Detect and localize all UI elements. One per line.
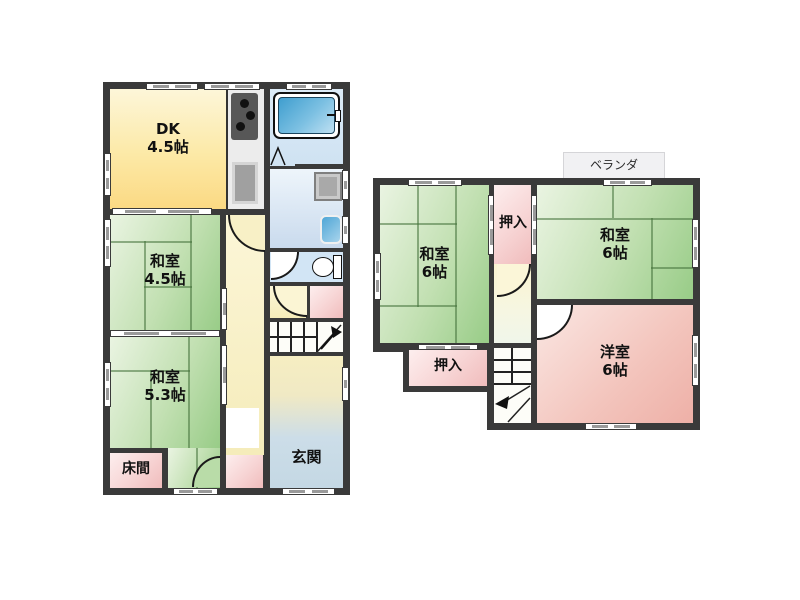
room-washitsu-right-name: 和室 <box>600 226 630 244</box>
stove-burner <box>240 99 249 108</box>
room-dk-name: DK <box>156 120 180 138</box>
fusuma-door <box>221 288 227 330</box>
stairs-floor1 <box>265 322 343 352</box>
room-dk-size: 4.5帖 <box>147 138 189 156</box>
storage-nook <box>226 408 259 448</box>
glass-dash <box>694 227 697 240</box>
glass-dash <box>153 85 169 88</box>
fusuma-door <box>110 330 220 337</box>
room-youshitsu-label: 洋室 6帖 <box>537 343 693 379</box>
veranda-name: ベランダ <box>590 158 638 172</box>
glass-dash <box>451 346 470 349</box>
room-youshitsu-size: 6帖 <box>602 361 627 379</box>
room-washitsu-left-size: 6帖 <box>422 263 447 281</box>
glass-dash <box>415 181 432 184</box>
stairs-floor1-treads <box>265 322 343 352</box>
folding-door-icon <box>269 146 287 166</box>
room-washitsu-45-name: 和室 <box>150 252 180 270</box>
room-genkan-name: 玄関 <box>291 448 321 466</box>
tatami-line <box>651 267 693 269</box>
window <box>146 83 198 90</box>
room-washitsu-53-label: 和室 5.3帖 <box>110 368 220 404</box>
glass-dash <box>106 246 109 259</box>
glass-dash <box>376 261 379 274</box>
fusuma-door <box>221 345 227 405</box>
room-oshiire-upper-name: 押入 <box>499 215 527 231</box>
stove-icon <box>231 93 258 140</box>
glass-dash <box>610 181 625 184</box>
glass-dash <box>533 205 536 221</box>
kitchen-sink-icon <box>232 162 258 204</box>
glass-dash <box>106 160 109 171</box>
glass-dash <box>198 490 212 493</box>
window <box>173 488 218 495</box>
glass-dash <box>344 380 347 389</box>
glass-dash <box>171 332 206 335</box>
glass-dash <box>168 210 199 213</box>
floor-plan-canvas: DK 4.5帖 <box>0 0 800 600</box>
fusuma-door <box>112 208 212 215</box>
window <box>585 423 637 430</box>
glass-dash <box>438 181 455 184</box>
glass-dash <box>175 85 191 88</box>
room-tokonoma-label: 床間 <box>110 461 162 478</box>
glass-dash <box>533 229 536 245</box>
room-dk-label: DK 4.5帖 <box>110 120 226 156</box>
glass-dash <box>376 280 379 293</box>
stairs-floor2-treads <box>494 348 531 423</box>
stairs-floor2 <box>494 348 531 423</box>
glass-dash <box>694 343 697 357</box>
tatami-line <box>380 305 457 307</box>
toilet-bowl-icon <box>312 257 334 277</box>
room-washitsu-53-size: 5.3帖 <box>144 386 186 404</box>
room-washitsu-45-size: 4.5帖 <box>144 270 186 288</box>
room-oshiire-lower-name: 押入 <box>434 358 462 374</box>
window <box>603 179 652 186</box>
glass-dash <box>124 332 159 335</box>
window <box>342 216 349 244</box>
room-washitsu-left-label: 和室 6帖 <box>380 245 489 281</box>
bathtub-faucet-icon <box>335 110 341 122</box>
washing-machine-icon <box>314 172 342 201</box>
glass-dash <box>223 303 226 314</box>
stove-burner <box>236 122 245 131</box>
room-washitsu-left-name: 和室 <box>419 245 449 263</box>
window <box>692 219 699 268</box>
glass-dash <box>125 210 156 213</box>
toilet-tank-icon <box>333 255 342 279</box>
fusuma-door <box>531 195 537 255</box>
glass-dash <box>106 369 109 381</box>
glass-dash <box>312 85 326 88</box>
window <box>104 153 111 196</box>
window <box>692 335 699 386</box>
entrance-door <box>282 488 335 495</box>
glass-dash <box>490 229 493 245</box>
room-washitsu-right-label: 和室 6帖 <box>537 226 693 262</box>
wall <box>264 252 270 356</box>
glass-dash <box>426 346 445 349</box>
glass-dash <box>344 181 347 189</box>
glass-dash <box>106 388 109 400</box>
glass-dash <box>694 364 697 378</box>
glass-dash <box>106 178 109 189</box>
entrance-step <box>226 455 263 488</box>
room-washitsu-53-name: 和室 <box>150 368 180 386</box>
tatami-line <box>612 185 614 218</box>
tatami-line <box>417 185 419 223</box>
window <box>342 170 349 200</box>
glass-dash <box>106 227 109 240</box>
window <box>286 83 332 90</box>
glass-dash <box>211 85 228 88</box>
window <box>342 367 349 401</box>
room-oshiire-lower-label: 押入 <box>409 358 487 375</box>
stairs-down-arrow-icon <box>495 396 509 409</box>
room-youshitsu-name: 洋室 <box>600 343 630 361</box>
window <box>374 253 381 300</box>
fusuma-door <box>418 344 478 350</box>
glass-dash <box>292 85 306 88</box>
wash-basin-icon <box>320 215 342 244</box>
washing-machine-drum <box>319 177 337 196</box>
tatami-line <box>537 218 693 220</box>
glass-dash <box>312 490 328 493</box>
glass-dash <box>235 85 252 88</box>
closet-room <box>310 286 343 318</box>
glass-dash <box>694 247 697 260</box>
room-washitsu-45-label: 和室 4.5帖 <box>110 252 220 288</box>
room-genkan <box>270 356 343 488</box>
glass-dash <box>592 425 608 428</box>
room-tokonoma-name: 床間 <box>122 461 150 477</box>
glass-dash <box>179 490 193 493</box>
window <box>104 362 111 407</box>
window <box>104 219 111 267</box>
room-genkan-label: 玄関 <box>270 448 343 466</box>
bathtub-icon <box>273 92 340 139</box>
window <box>408 179 462 186</box>
veranda-label: ベランダ <box>563 158 665 172</box>
glass-dash <box>630 181 645 184</box>
glass-dash <box>344 226 347 233</box>
stove-burner <box>246 111 255 120</box>
window <box>204 83 260 90</box>
glass-dash <box>614 425 630 428</box>
tatami-line <box>110 241 192 243</box>
glass-dash <box>223 367 226 383</box>
fusuma-door <box>488 195 494 255</box>
glass-dash <box>490 205 493 221</box>
room-washitsu-right-size: 6帖 <box>602 244 627 262</box>
glass-dash <box>289 490 305 493</box>
